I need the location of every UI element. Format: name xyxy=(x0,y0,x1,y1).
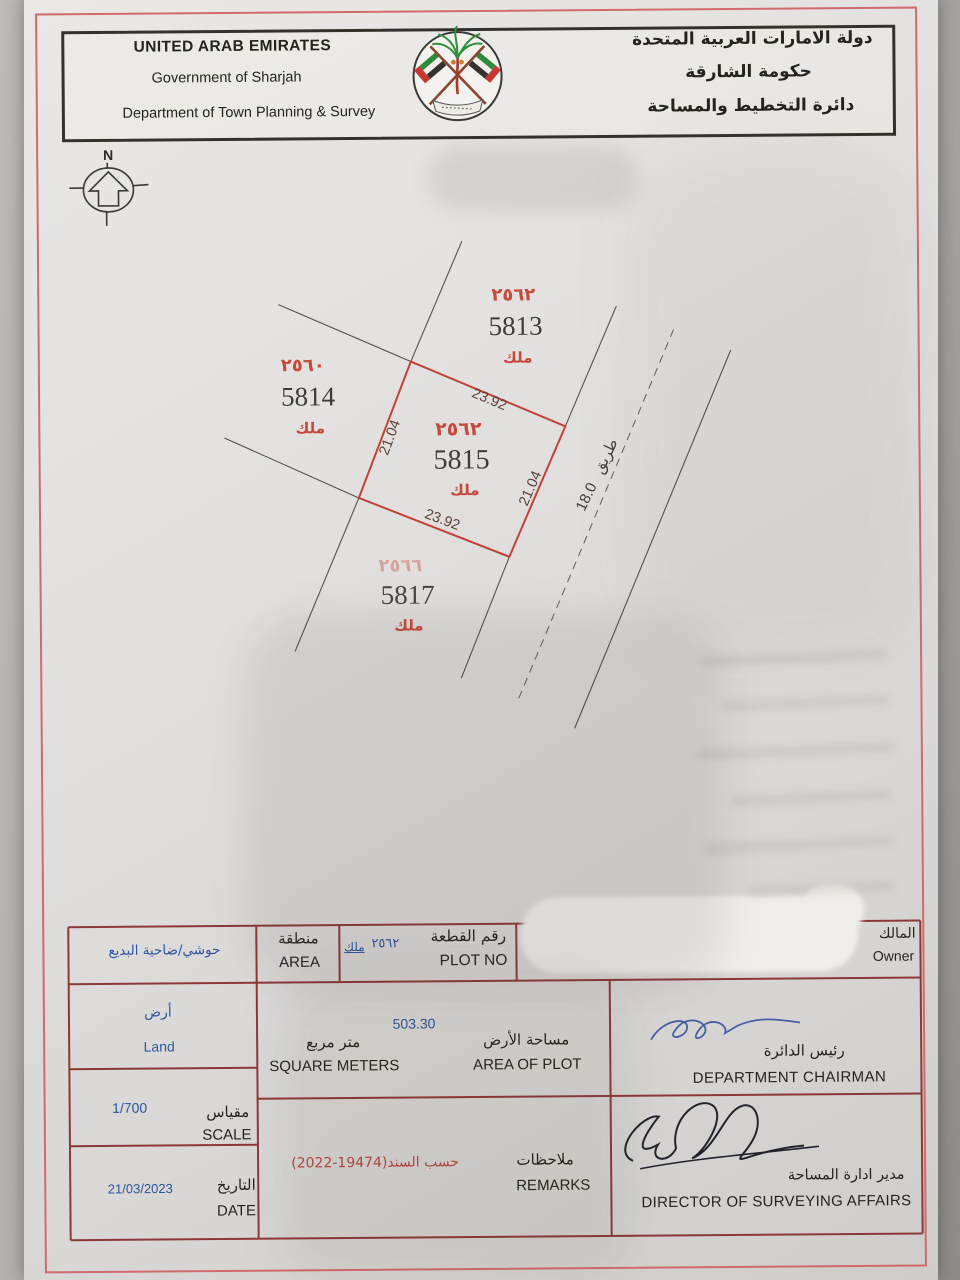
area-label-ar: منطقة xyxy=(278,929,319,947)
remarks-label-ar: ملاحظات xyxy=(516,1150,573,1168)
header-government-ar: حكومة الشارقة xyxy=(685,61,812,82)
director-label-ar: مدير ادارة المساحة xyxy=(788,1167,905,1184)
owner-label-en: Owner xyxy=(873,948,914,964)
plot-mulk-value: ملك xyxy=(344,940,365,954)
remarks-value: حسب السند⁦(2022-19474)⁩ xyxy=(291,1154,459,1171)
land-type-ar: أرض xyxy=(144,1004,172,1020)
date-value: 21/03/2023 xyxy=(108,1181,173,1197)
chairman-label-ar: رئيس الدائرة xyxy=(764,1041,845,1060)
area-of-plot-label-en: AREA OF PLOT xyxy=(473,1056,582,1074)
date-label-ar: التاريخ xyxy=(217,1176,256,1194)
unit-label-ar: متر مربع xyxy=(306,1033,360,1051)
header-department-en: Department of Town Planning & Survey xyxy=(122,104,375,122)
owner-label-ar: المالك xyxy=(879,926,916,942)
remarks-label-en: REMARKS xyxy=(516,1177,590,1195)
scale-value: 1/700 xyxy=(112,1100,147,1116)
area-of-plot-value: 503.30 xyxy=(393,1015,436,1031)
director-label-en: DIRECTOR OF SURVEYING AFFAIRS xyxy=(641,1192,911,1211)
plot-no-label-ar: رقم القطعة xyxy=(430,927,506,946)
date-label-en: DATE xyxy=(217,1202,256,1219)
plot-no-label-en: PLOT NO xyxy=(440,952,508,971)
plot-no-value: ٢٥٦٢ xyxy=(371,936,399,951)
scale-label-en: SCALE xyxy=(202,1126,251,1143)
area-label-en: AREA xyxy=(279,954,320,971)
chairman-label-en: DEPARTMENT CHAIRMAN xyxy=(693,1068,887,1087)
document-photo: UNITED ARAB EMIRATES Government of Sharj… xyxy=(0,0,960,1280)
unit-label-en: SQUARE METERS xyxy=(269,1057,399,1075)
header-government-en: Government of Sharjah xyxy=(152,69,302,86)
scale-label-ar: مقياس xyxy=(206,1103,249,1121)
area-value: حوشي/ضاحية البديع xyxy=(108,942,220,959)
header-country-en: UNITED ARAB EMIRATES xyxy=(134,37,332,57)
land-type-en: Land xyxy=(144,1038,175,1054)
owner-redaction-blob xyxy=(520,895,859,974)
header-country-ar: دولة الامارات العربية المتحدة xyxy=(632,28,873,50)
header-department-ar: دائرة التخطيط والمساحة xyxy=(647,95,854,117)
area-of-plot-label-ar: مساحة الأرض xyxy=(483,1030,569,1049)
